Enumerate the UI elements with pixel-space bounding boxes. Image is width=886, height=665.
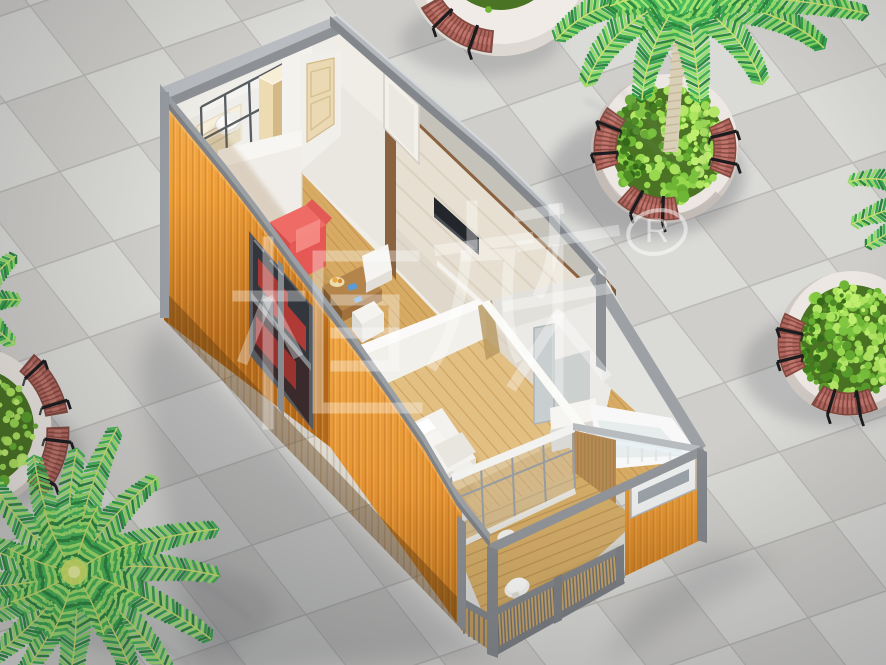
svg-text:R: R [645, 212, 670, 250]
